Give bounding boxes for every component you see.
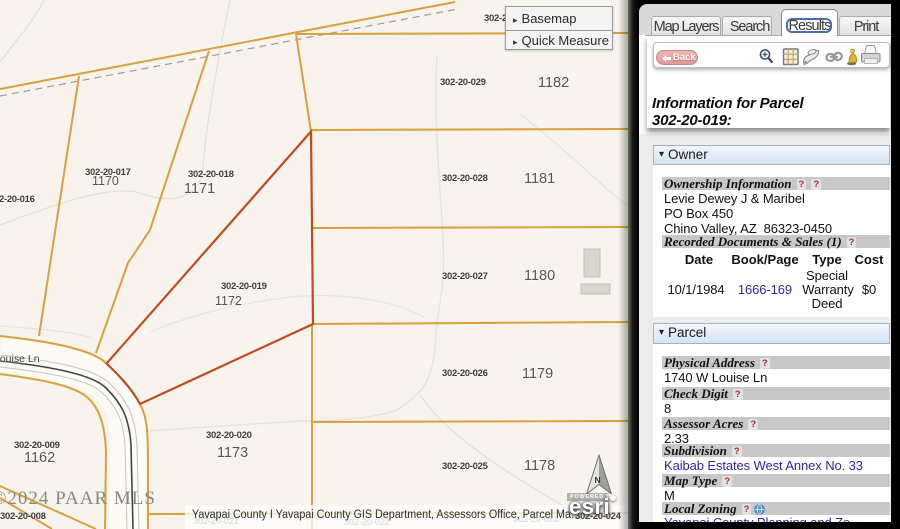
svg-text:N: N	[595, 475, 601, 485]
